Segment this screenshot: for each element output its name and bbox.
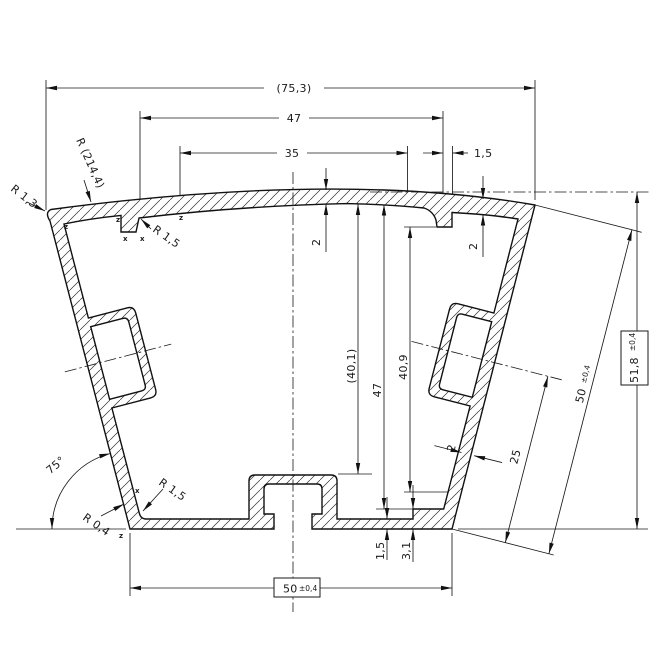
svg-text:±0,4: ±0,4 [628,333,637,351]
technical-drawing-canvas: (75,3) 47 35 1,5 2 2 R (214,4) R 1,3 R 1… [0,0,666,666]
x-mark: x [123,235,128,243]
svg-text:51,8: 51,8 [628,357,641,383]
svg-text:±0,4: ±0,4 [299,584,317,593]
label-depth-40-1: (40,1) [345,349,358,384]
leader-r214 [84,180,91,202]
label-wall-2-center: 2 [310,239,323,246]
label-wall-2-right: 2 [467,243,480,250]
label-base-1-5: 1,5 [374,542,387,560]
leader-r0-4 [101,504,124,516]
label-radius-1-3: R 1,3 [8,182,40,211]
label-base-3-1: 3,1 [400,542,413,560]
z-mark: z [116,216,120,224]
left-clip-axis [65,344,171,372]
svg-text:±0,4: ±0,4 [579,364,592,384]
x-mark: x [135,487,140,495]
profile-section-drawing: (75,3) 47 35 1,5 2 2 R (214,4) R 1,3 R 1… [0,0,666,666]
label-radius-214: R (214,4) [73,136,107,191]
z-mark: z [64,223,68,231]
label-wall-2-side: 2 [444,443,458,453]
label-side-50: 50 ±0,4 [573,364,595,405]
x-mark: x [140,235,145,243]
z-mark: z [119,532,123,540]
label-radius-0-4: R 0,4 [80,511,112,539]
dim-50-side [549,230,632,554]
label-offset-1-5: 1,5 [474,147,492,160]
label-slot-width: 35 [285,147,300,160]
z-mark: z [179,214,183,222]
label-depth-40-9: 40,9 [397,354,410,380]
label-radius-1-5-bottom: R 1,5 [156,476,188,504]
label-side-25: 25 [507,448,523,465]
extrusion-profile-outline [47,189,535,529]
label-depth-47: 47 [371,383,384,398]
label-radius-1-5-top: R 1,5 [150,223,182,251]
leader-r1-5-bottom [143,489,163,511]
leader-r1-5-top [141,219,151,229]
label-overall-width: (75,3) [277,82,312,95]
label-angle-75: 75° [44,454,68,477]
label-top-width: 47 [287,112,302,125]
label-bottom-50: 50 [283,583,298,596]
svg-text:50: 50 [573,387,589,404]
